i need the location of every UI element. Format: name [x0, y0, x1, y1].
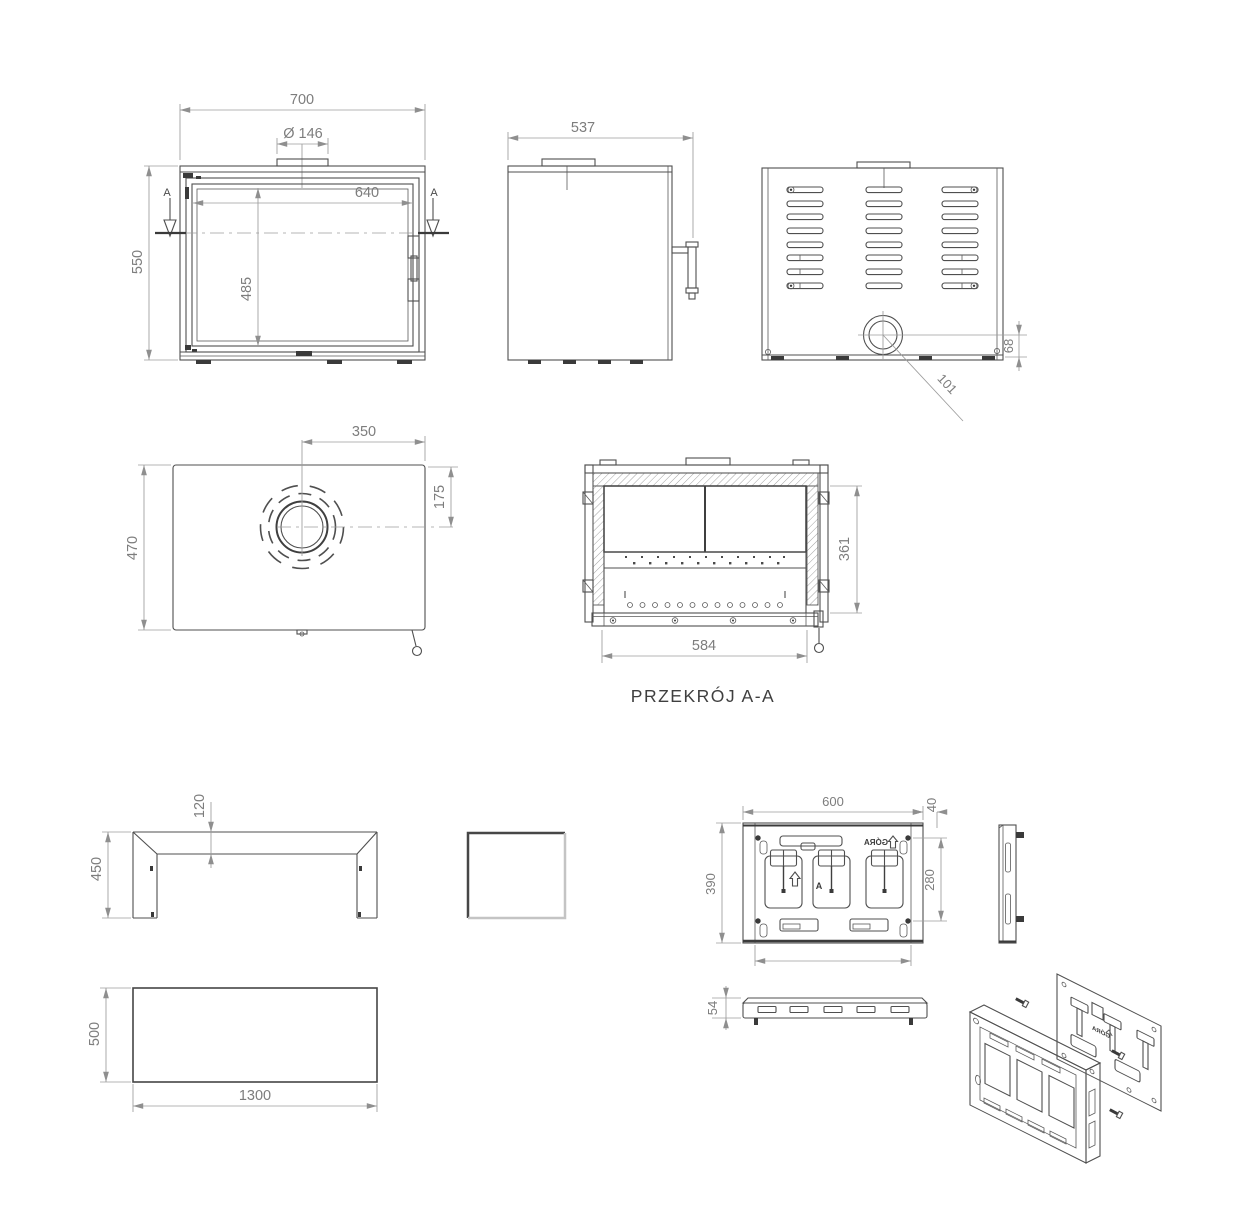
section-grate-holes	[628, 603, 783, 608]
view-exploded: GÓRA	[970, 974, 1161, 1163]
section-arrow-right: A	[418, 187, 449, 236]
dim-section-width: 584	[692, 638, 716, 654]
dim-mount-inner-height: 280	[922, 869, 937, 891]
view-back: 101 68	[762, 162, 1027, 421]
mount-up-arrow-icon	[889, 836, 898, 848]
view-grille-bar: 54	[705, 986, 927, 1030]
mount-inner-up-arrow-icon	[790, 872, 800, 886]
dim-back-outlet-height: 68	[1001, 339, 1016, 353]
exploded-screw-2	[1110, 1048, 1124, 1059]
dim-top-depth: 470	[125, 536, 141, 560]
mount-letter-a: A	[816, 881, 823, 891]
section-marker-a-right: A	[430, 187, 438, 199]
dim-mount-height: 390	[703, 873, 718, 895]
view-stand-frame: 120 450	[89, 794, 377, 918]
mount-corner-screws	[755, 835, 910, 937]
dim-front-inner-height: 485	[239, 277, 255, 301]
dim-front-inner-width: 640	[355, 185, 379, 201]
view-section-aa: 361 584 PRZEKRÓJ A-A	[583, 458, 862, 706]
dim-top-flue-x: 350	[352, 424, 376, 440]
view-front: 700 Ø 146 550 640 485 A A	[130, 92, 449, 364]
view-mount-plate-side	[999, 825, 1024, 943]
view-side-panel	[468, 833, 565, 918]
dim-back-outlet-diagonal: 101	[934, 371, 960, 397]
dim-stand-height: 450	[89, 857, 105, 881]
view-side: 537	[508, 120, 698, 364]
dim-bar-height: 54	[705, 1001, 720, 1015]
dim-base-width: 1300	[239, 1088, 271, 1104]
view-base-plate: 500 1300	[87, 988, 377, 1112]
section-bottom-bar	[592, 613, 818, 626]
view-top: 350 175 470	[125, 424, 458, 656]
section-marker-a-left: A	[163, 187, 171, 199]
dim-section-height: 361	[837, 537, 853, 561]
section-caption: PRZEKRÓJ A-A	[631, 685, 775, 706]
dim-front-height: 550	[130, 250, 146, 274]
section-glass	[604, 486, 806, 552]
dim-base-depth: 500	[87, 1022, 103, 1046]
exploded-back-plate: GÓRA	[1057, 974, 1161, 1111]
mount-orientation-text: GÓRA	[864, 838, 888, 847]
technical-drawing-sheet: 700 Ø 146 550 640 485 A A	[0, 0, 1237, 1226]
exploded-screw-3	[1108, 1107, 1122, 1118]
mount-cutouts	[765, 850, 903, 908]
section-arrow-left: A	[155, 187, 186, 236]
dim-front-flue: Ø 146	[283, 126, 323, 142]
dim-top-flue-y: 175	[432, 485, 448, 509]
dim-front-width: 700	[290, 92, 314, 108]
view-mount-plate: GÓRA A 600 40 390 280	[703, 794, 947, 966]
door-handle	[672, 242, 698, 299]
drawing-svg: 700 Ø 146 550 640 485 A A	[0, 0, 1237, 1226]
dim-mount-width: 600	[822, 794, 844, 809]
dim-mount-offset: 40	[924, 798, 939, 812]
vent-slots	[787, 187, 978, 289]
exploded-frame	[970, 1005, 1100, 1163]
dim-stand-profile: 120	[192, 794, 208, 818]
exploded-screw-1	[1014, 996, 1028, 1007]
section-deflector-dots	[625, 556, 785, 564]
section-latch-knob	[814, 611, 824, 653]
dim-side-depth: 537	[571, 120, 595, 136]
